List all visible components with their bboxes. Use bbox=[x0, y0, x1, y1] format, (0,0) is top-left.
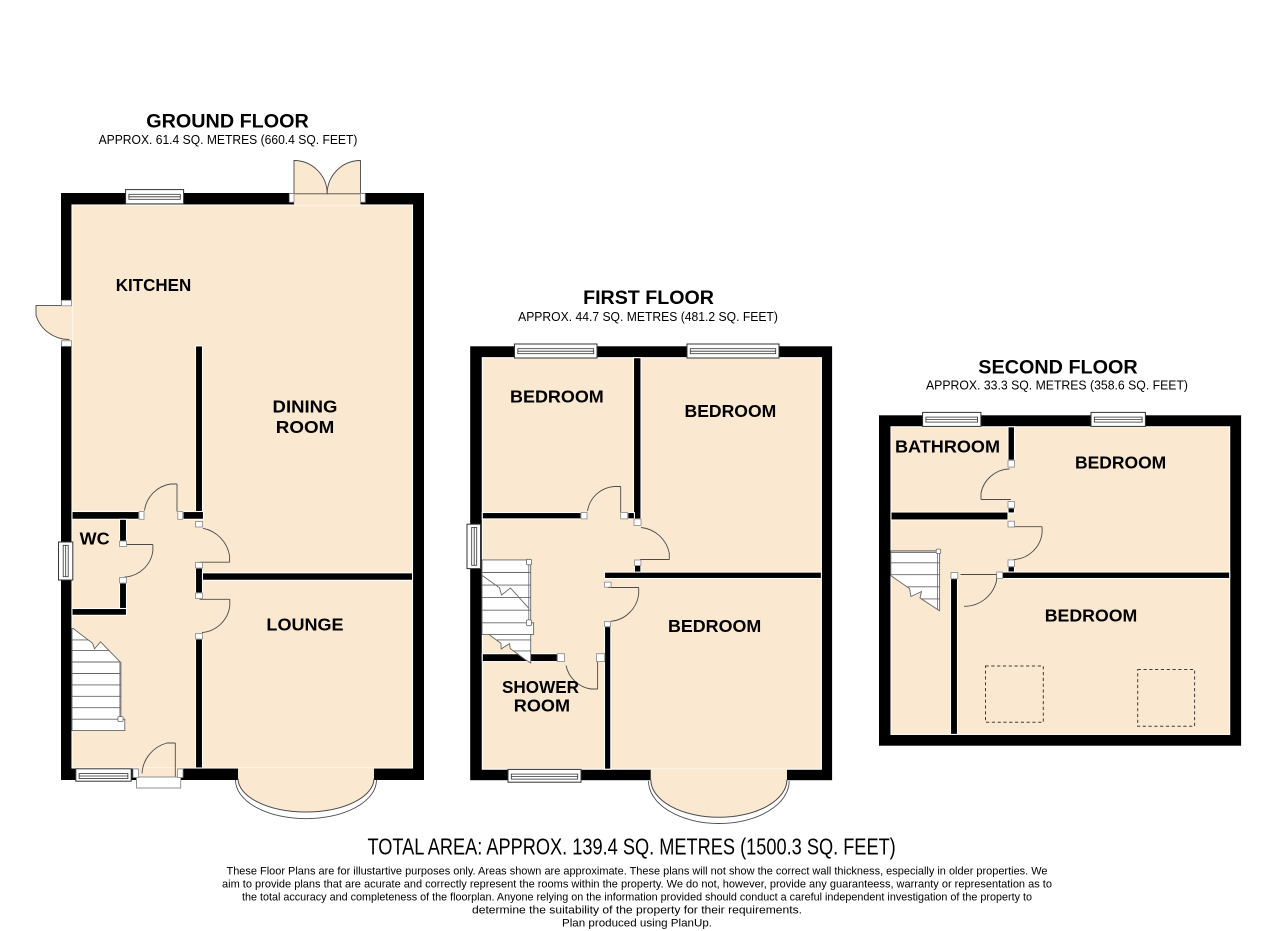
svg-text:BATHROOM: BATHROOM bbox=[895, 437, 1000, 457]
svg-text:APPROX. 33.3 SQ. METRES (358.6: APPROX. 33.3 SQ. METRES (358.6 SQ. FEET) bbox=[926, 378, 1188, 393]
svg-text:LOUNGE: LOUNGE bbox=[266, 615, 343, 635]
svg-text:These Floor Plans are for illu: These Floor Plans are for illustartive p… bbox=[227, 865, 1048, 877]
svg-text:FIRST FLOOR: FIRST FLOOR bbox=[583, 287, 714, 309]
svg-text:DINING: DINING bbox=[273, 396, 338, 416]
svg-text:ROOM: ROOM bbox=[514, 695, 570, 715]
svg-text:WC: WC bbox=[80, 528, 110, 548]
svg-text:aim to provide plans that are: aim to provide plans that are acurate an… bbox=[222, 878, 1052, 890]
svg-text:BEDROOM: BEDROOM bbox=[1045, 606, 1138, 626]
svg-text:ROOM: ROOM bbox=[276, 417, 335, 437]
svg-text:Plan produced using PlanUp.: Plan produced using PlanUp. bbox=[562, 918, 712, 930]
svg-text:the total accuracy and complet: the total accuracy and completeness of t… bbox=[242, 891, 1032, 903]
svg-text:GROUND FLOOR: GROUND FLOOR bbox=[146, 111, 309, 133]
svg-text:BEDROOM: BEDROOM bbox=[685, 401, 777, 421]
svg-text:TOTAL AREA: APPROX. 139.4 SQ.: TOTAL AREA: APPROX. 139.4 SQ. METRES (15… bbox=[367, 834, 895, 860]
svg-text:APPROX. 61.4 SQ. METRES (660.4: APPROX. 61.4 SQ. METRES (660.4 SQ. FEET) bbox=[99, 132, 358, 147]
svg-text:SHOWER: SHOWER bbox=[502, 677, 579, 697]
svg-text:KITCHEN: KITCHEN bbox=[116, 275, 191, 295]
svg-text:APPROX. 44.7 SQ. METRES (481.2: APPROX. 44.7 SQ. METRES (481.2 SQ. FEET) bbox=[518, 309, 778, 324]
svg-text:BEDROOM: BEDROOM bbox=[1075, 452, 1166, 472]
svg-text:SECOND FLOOR: SECOND FLOOR bbox=[978, 357, 1137, 379]
svg-text:determine the suitability of t: determine the suitability of the propert… bbox=[472, 905, 802, 917]
svg-text:BEDROOM: BEDROOM bbox=[668, 616, 761, 636]
svg-text:BEDROOM: BEDROOM bbox=[510, 387, 604, 407]
